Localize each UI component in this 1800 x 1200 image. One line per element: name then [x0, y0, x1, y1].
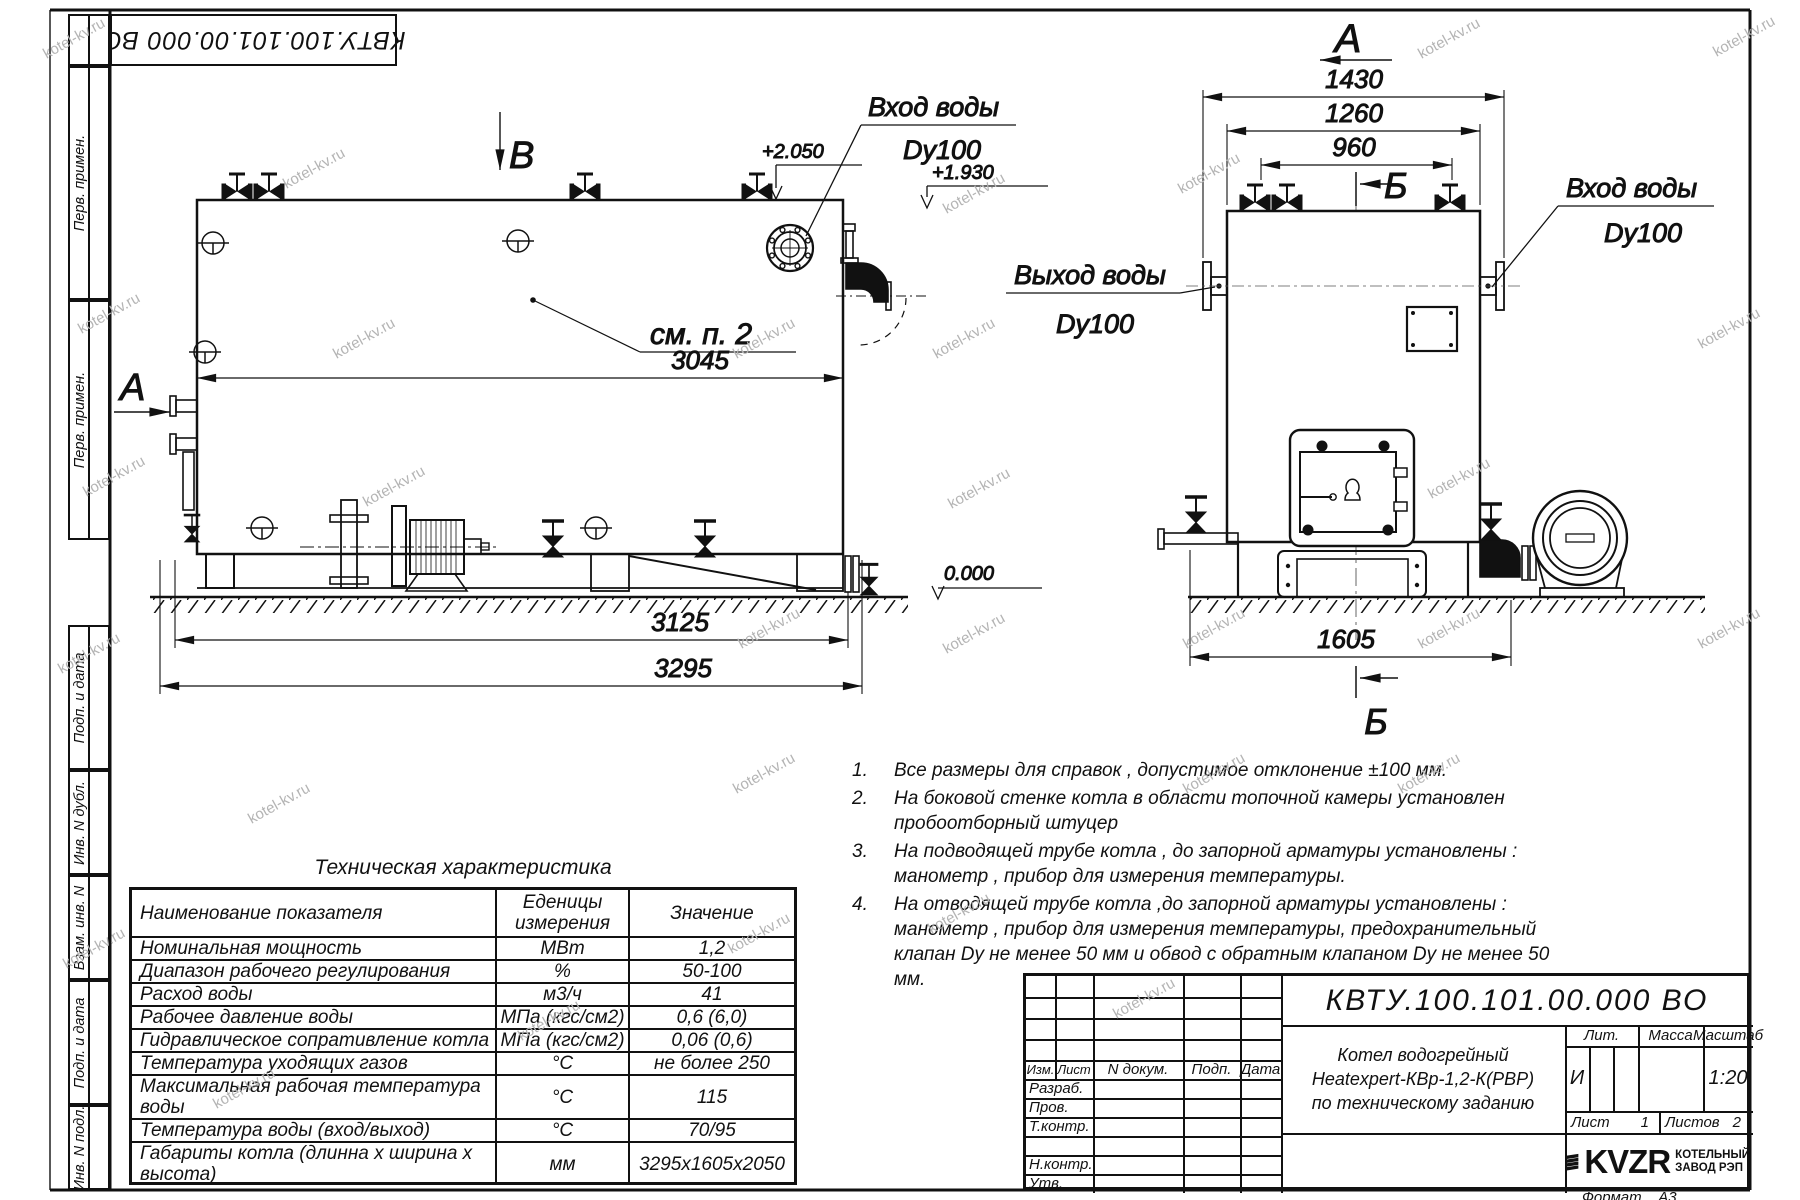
- margin-cell-podp-1: Подп. и дата: [68, 625, 110, 770]
- notes-list: 1. Все размеры для справок , допустимое …: [852, 758, 1552, 995]
- tech-header-name: Наименование показателя: [132, 890, 497, 938]
- tech-row-name: Максимальная рабочая температура воды: [132, 1076, 497, 1120]
- margin-cell-podp-2: Подп. и дата: [68, 980, 110, 1105]
- margin-cell-inv-dubl: Инв. N дубл.: [68, 770, 110, 875]
- note-text: На подводящей трубе котла , до запорной …: [894, 839, 1552, 889]
- furnace-door: [1290, 430, 1414, 546]
- tb-col-izm: Изм.: [1026, 1060, 1055, 1079]
- front-outlet-dn: Dy100: [1056, 309, 1134, 339]
- note-number: 2.: [852, 786, 894, 836]
- tech-row-unit: м3/ч: [497, 984, 630, 1007]
- tech-row-unit: МПа (кгс/см2): [497, 1030, 630, 1053]
- dim-3045: 3045: [671, 345, 729, 375]
- boiler-base: [1238, 542, 1468, 597]
- note-item: 2. На боковой стенке котла в области топ…: [852, 786, 1552, 836]
- blower-fan: [1480, 491, 1627, 597]
- tb-lit-value: И: [1565, 1046, 1589, 1111]
- company-line: КОТЕЛЬНЫЙ: [1675, 1149, 1750, 1161]
- tb-sheet: Лист 1: [1565, 1111, 1659, 1133]
- tech-row-value: 3295х1605х2050: [630, 1143, 794, 1185]
- dim-1260: 1260: [1325, 98, 1383, 128]
- dim-1430: 1430: [1325, 64, 1383, 94]
- margin-label: Инв. N дубл.: [72, 781, 88, 865]
- format-value: А3: [1658, 1189, 1676, 1200]
- margin-cell-perv-1: Перв. примен.: [68, 66, 110, 300]
- tech-row-name: Гидравлическое сопративление котла: [132, 1030, 497, 1053]
- tech-row-unit: мм: [497, 1143, 630, 1185]
- margin-label: Перв. примен.: [72, 135, 88, 231]
- tb-col-podp: Подп.: [1183, 1060, 1240, 1079]
- product-line: Heatexpert-КВр-1,2-К(РВР): [1312, 1067, 1534, 1091]
- sheets-value: 2: [1733, 1114, 1741, 1131]
- tech-row-unit: МВт: [497, 938, 630, 961]
- tech-row-unit: %: [497, 961, 630, 984]
- note-text: На боковой стенке котла в области топочн…: [894, 786, 1552, 836]
- tb-row-prov: Пров.: [1029, 1098, 1093, 1117]
- tb-col-dokum: N докум.: [1093, 1060, 1183, 1079]
- section-b-top: Б: [1384, 165, 1407, 206]
- note-text: Все размеры для справок , допустимое отк…: [894, 758, 1552, 783]
- tech-table: Наименование показателя Еденицы измерени…: [129, 887, 797, 1185]
- company-line: ЗАВОД РЭП: [1675, 1162, 1743, 1174]
- dim-1605: 1605: [1317, 624, 1375, 654]
- tech-header-unit: Еденицы измерения: [497, 890, 630, 938]
- front-inlet-label: Вход воды: [1566, 173, 1697, 203]
- tech-row-value: не более 250: [630, 1053, 794, 1076]
- tech-row-name: Рабочее давление воды: [132, 1007, 497, 1030]
- front-inlet-dn: Dy100: [1604, 218, 1682, 248]
- product-line: по техническому заданию: [1312, 1091, 1534, 1115]
- format-label: Формат А3: [1582, 1189, 1677, 1200]
- skid-frame: [591, 554, 859, 592]
- kvzr-logo-icon: [1565, 1144, 1579, 1180]
- tech-row-name: Габариты котла (длинна х ширина х высота…: [132, 1143, 497, 1185]
- dim-3295: 3295: [654, 653, 712, 683]
- side-view: [150, 174, 928, 613]
- note-number: 3.: [852, 839, 894, 889]
- tb-row-razrab: Разраб.: [1029, 1079, 1093, 1098]
- company-name: КОТЕЛЬНЫЙ ЗАВОД РЭП: [1675, 1149, 1750, 1175]
- tech-row-unit: °С: [497, 1053, 630, 1076]
- tb-row-utv: Утв.: [1029, 1174, 1093, 1193]
- tech-row-unit: °С: [497, 1120, 630, 1143]
- tech-header-value: Значение: [630, 890, 794, 938]
- note-number: 1.: [852, 758, 894, 783]
- inlet-dn: Dy100: [903, 135, 981, 165]
- view-a-label: А: [118, 367, 145, 409]
- title-block: Изм. Лист N докум. Подп. Дата Разраб. Пр…: [1023, 973, 1750, 1190]
- tech-row-value: 50-100: [630, 961, 794, 984]
- tech-row-value: 0,6 (6,0): [630, 1007, 794, 1030]
- note-number: 4.: [852, 892, 894, 992]
- level-pipe: +1.930: [932, 162, 994, 184]
- dim-3125: 3125: [651, 607, 709, 637]
- front-view: [1158, 185, 1705, 640]
- front-outlet-label: Выход воды: [1014, 260, 1166, 290]
- tech-table-title: Техническая характеристика: [129, 856, 797, 880]
- tech-row-name: Температура уходящих газов: [132, 1053, 497, 1076]
- tech-row-name: Диапазон рабочего регулирования: [132, 961, 497, 984]
- tech-row-name: Расход воды: [132, 984, 497, 1007]
- tb-sheets: Листов 2: [1659, 1111, 1753, 1133]
- sheets-label: Листов: [1665, 1114, 1720, 1131]
- note-item: 1. Все размеры для справок , допустимое …: [852, 758, 1552, 783]
- margin-label: Подп. и дата: [72, 997, 88, 1088]
- top-stamp: КВТУ.100.101.00.000 ВО: [110, 14, 397, 66]
- tb-scale-value: 1:20: [1703, 1046, 1753, 1111]
- margin-label: Подп. и дата: [72, 652, 88, 743]
- tb-row-tkontr: Т.контр.: [1029, 1117, 1093, 1136]
- dim-960: 960: [1332, 132, 1376, 162]
- front-view-a-label: А: [1333, 17, 1362, 61]
- section-b-bottom: Б: [1364, 701, 1387, 742]
- tech-row-value: 1,2: [630, 938, 794, 961]
- tb-row-nkontr: Н.контр.: [1029, 1155, 1093, 1174]
- tb-doc-number: КВТУ.100.101.00.000 ВО: [1281, 976, 1753, 1025]
- margin-label: Инв. N подл.: [72, 1105, 88, 1190]
- tb-col-data: Дата: [1240, 1060, 1281, 1079]
- outlet-elbow: [836, 224, 928, 345]
- margin-label: Взам. инв. N: [72, 885, 88, 969]
- tech-row-value: 41: [630, 984, 794, 1007]
- level-zero: 0.000: [944, 563, 994, 585]
- company-logo: KVZR КОТЕЛЬНЫЙ ЗАВОД РЭП: [1565, 1133, 1750, 1190]
- margin-label: Перв. примен.: [72, 372, 88, 468]
- margin-cell-blank: [68, 14, 110, 66]
- view-b-label: В: [509, 135, 534, 177]
- sheet-value: 1: [1641, 1114, 1649, 1131]
- tech-row-name: Номинальная мощность: [132, 938, 497, 961]
- tech-row-value: 0,06 (0,6): [630, 1030, 794, 1053]
- tb-product-name: Котел водогрейный Heatexpert-КВр-1,2-К(Р…: [1281, 1025, 1565, 1133]
- margin-cell-perv-2: Перв. примен.: [68, 300, 110, 540]
- tech-row-unit: °С: [497, 1076, 630, 1120]
- inlet-flange: [767, 225, 813, 271]
- margin-cell-vzam: Взам. инв. N: [68, 875, 110, 980]
- drawing-sheet: В А +2.050 Вход воды Dy100 +1.930 см. п.…: [0, 0, 1800, 1200]
- tech-row-name: Температура воды (вход/выход): [132, 1120, 497, 1143]
- note-item: 3. На подводящей трубе котла , до запорн…: [852, 839, 1552, 889]
- sheet-label: Лист: [1571, 1114, 1610, 1131]
- level-top: +2.050: [762, 141, 824, 163]
- logo-text: KVZR: [1584, 1143, 1670, 1181]
- side-stubs: [170, 396, 197, 510]
- tech-row-value: 115: [630, 1076, 794, 1120]
- tb-lit-label: Лит.: [1565, 1025, 1638, 1046]
- tb-col-list: Лист: [1055, 1060, 1093, 1079]
- inlet-label: Вход воды: [868, 92, 999, 122]
- product-line: Котел водогрейный: [1337, 1043, 1508, 1067]
- tb-scale-label: Масштаб: [1703, 1025, 1753, 1046]
- tech-row-unit: МПа (кгс/см2): [497, 1007, 630, 1030]
- tech-row-value: 70/95: [630, 1120, 794, 1143]
- margin-cell-inv-podl: Инв. N подл.: [68, 1105, 110, 1190]
- format-word: Формат: [1582, 1189, 1642, 1200]
